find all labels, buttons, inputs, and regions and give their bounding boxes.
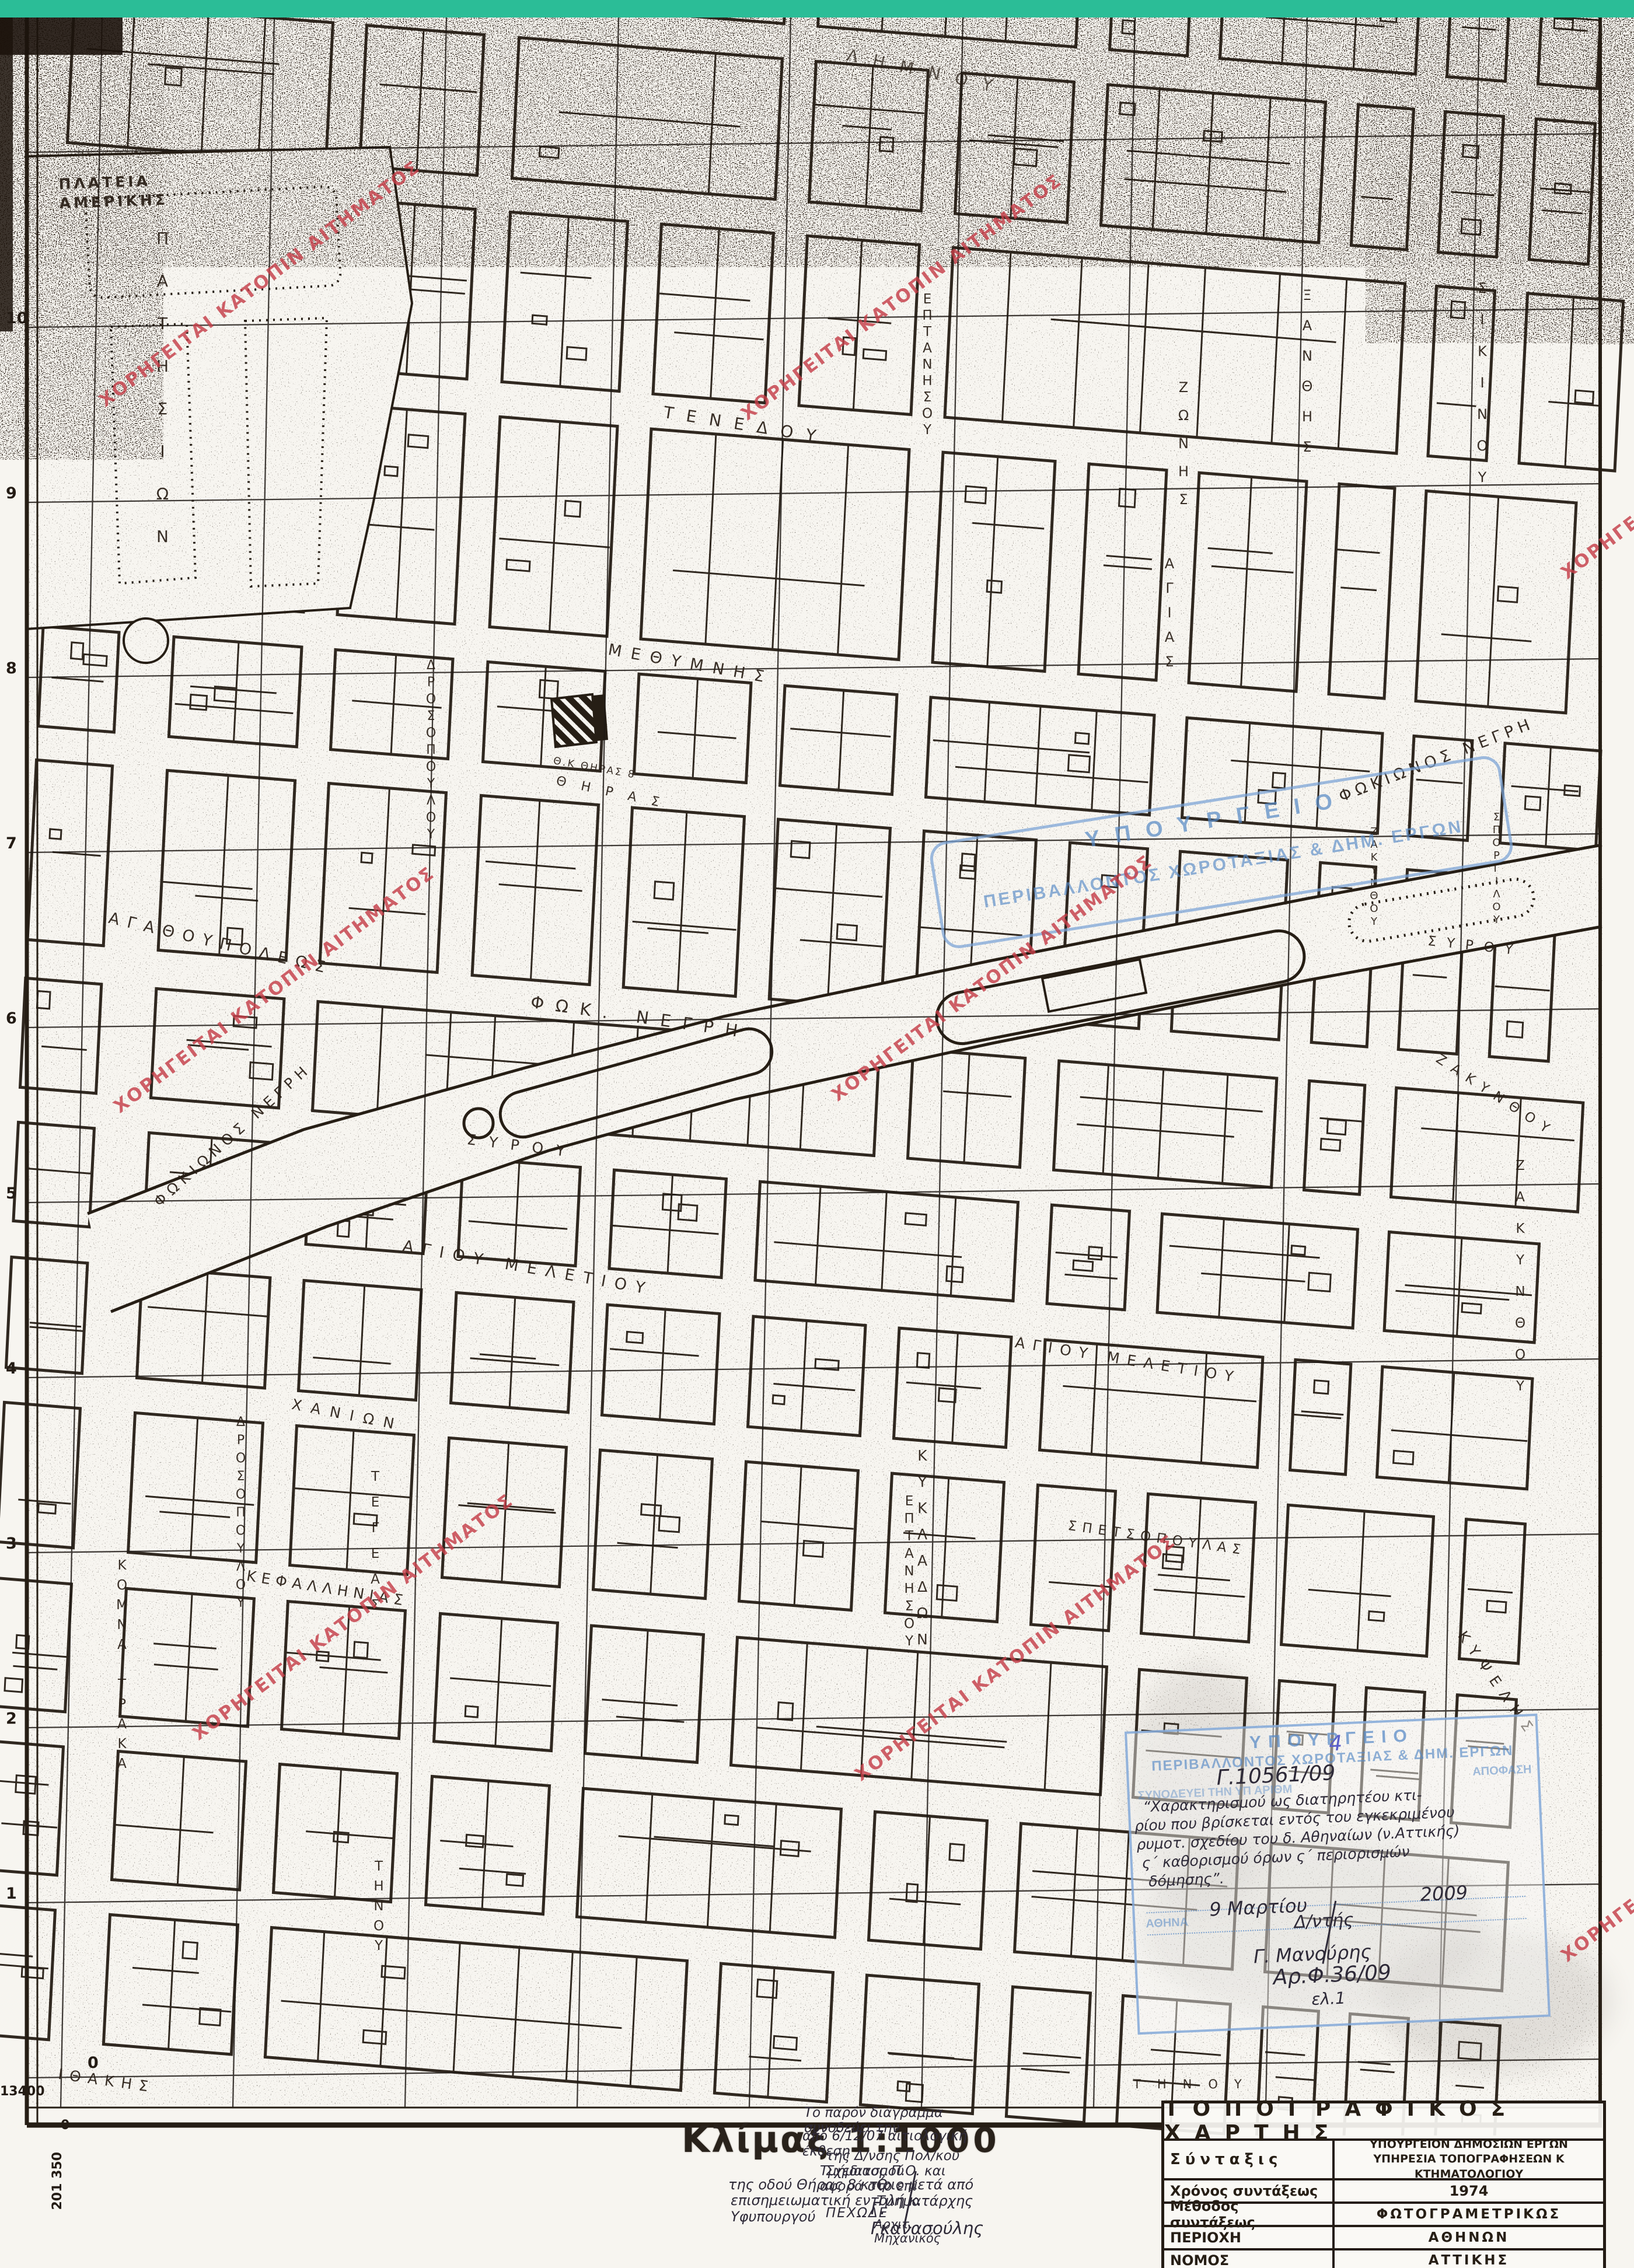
decision-body-5: δόμησης”. bbox=[1148, 1869, 1225, 1890]
tb-label-syntaxis: Σύνταξις bbox=[1164, 2141, 1335, 2178]
title-block: ΤΟΠΟΓΡΑΦΙΚΟΣ ΧΑΡΤΗΣ Σύνταξις ΥΠΟΥΡΓΕΙΟΝ … bbox=[1161, 2101, 1606, 2268]
label-zakynthou-east: ΖΑΚΥΝΘΟΥ bbox=[1513, 1158, 1528, 1410]
label-drosopoulou-north: ΔΡΟΣΟΠΟΥΛΟΥ bbox=[424, 658, 438, 844]
label-xanthis: ΞΑΝΘΗΣ bbox=[1299, 287, 1315, 469]
note-signature-role: Αρχιτ. Μηχανικός bbox=[874, 2217, 980, 2245]
label-eptanisou-north: ΕΠΤΑΝΗΣΟΥ bbox=[920, 292, 935, 439]
title-block-row-prefecture: ΝΟΜΟΣ ΑΤΤΙΚΗΣ bbox=[1164, 2248, 1603, 2268]
grid-number-7: 7 bbox=[6, 834, 17, 852]
label-plateia-amerikis: ΠΛΑΤΕΙΑ ΑΜΕΡΙΚΗΣ bbox=[58, 171, 168, 212]
tb-label-area: ΠΕΡΙΟΧΗ bbox=[1164, 2227, 1335, 2248]
tb-value-method: ΦΩΤΟΓΡΑΜΕΤΡΙΚΩΣ bbox=[1335, 2204, 1603, 2225]
decision-role: Δ/ντής bbox=[1294, 1910, 1354, 1932]
grid-number-1: 1 bbox=[6, 1885, 17, 1903]
decision-year: 2009 bbox=[1420, 1881, 1468, 1906]
label-patision: ΠΑΤΗΣΙΩΝ bbox=[153, 229, 172, 569]
decision-sheet: ελ.1 bbox=[1311, 1989, 1346, 2010]
decision-protocol-number: Γ.10561/09 bbox=[1216, 1761, 1336, 1790]
decision-corner-mark: 4 bbox=[1328, 1731, 1343, 1756]
scanned-topographic-map: ΠΛΑΤΕΙΑ ΑΜΕΡΙΚΗΣ ΠΑΤΗΣΙΩΝ ΛΗΜΝΟΥ ΤΕΝΕΔΟΥ… bbox=[0, 0, 1634, 2268]
decision-city: ΑΘΗΝΑ bbox=[1146, 1916, 1189, 1931]
handwritten-note: Το παρόν διάγραμμα συνοδεύει την από 6/1… bbox=[677, 2095, 980, 2268]
label-komna-traka: ΚΟΜΝΑ ΤΡΑΚΑ bbox=[114, 1558, 130, 1776]
title-block-row-method: Μέθοδος συντάξεως ΦΩΤΟΓΡΑΜΕΤΡΙΚΩΣ bbox=[1164, 2201, 1603, 2225]
title-block-row-area: ΠΕΡΙΟΧΗ ΑΘΗΝΩΝ bbox=[1164, 2225, 1603, 2248]
title-block-title: ΤΟΠΟΓΡΑΦΙΚΟΣ ΧΑΡΤΗΣ bbox=[1164, 2103, 1603, 2138]
grid-number-5: 5 bbox=[6, 1184, 17, 1203]
tb-value-syntaxis: ΥΠΟΥΡΓΕΙΟΝ ΔΗΜΟΣΙΩΝ ΕΡΓΩΝ ΥΠΗΡΕΣΙΑ ΤΟΠΟΓ… bbox=[1335, 2141, 1603, 2178]
decision-stamp: ΥΠΟΥΡΓΕΙΟ ΠΕΡΙΒΑΛΛΟΝΤΟΣ ΧΩΡΟΤΑΞΙΑΣ & ΔΗΜ… bbox=[1125, 1714, 1551, 2035]
grid-number-10: 10 bbox=[6, 309, 28, 327]
decision-file-number: Αρ.Φ.36/09 bbox=[1273, 1961, 1392, 1990]
label-kykladon: ΚΥΚΛΑΔΩΝ bbox=[914, 1447, 931, 1657]
label-tinou-south: ΤΗΝΟΥ bbox=[1133, 2077, 1258, 2091]
title-block-row-syntaxis: Σύνταξις ΥΠΟΥΡΓΕΙΟΝ ΔΗΜΟΣΙΩΝ ΕΡΓΩΝ ΥΠΗΡΕ… bbox=[1164, 2138, 1603, 2178]
grid-number-2: 2 bbox=[6, 1710, 17, 1728]
tb-label-prefecture: ΝΟΜΟΣ bbox=[1164, 2250, 1335, 2268]
tb-value-year: 1974 bbox=[1335, 2180, 1603, 2201]
tb-label-method: Μέθοδος συντάξεως bbox=[1164, 2204, 1335, 2225]
scanner-edge-band bbox=[0, 0, 1634, 18]
grid-number-8: 8 bbox=[6, 659, 17, 677]
label-agias: ΑΓΙΑΣ bbox=[1161, 555, 1178, 678]
label-sikinou: ΣΙΚΙΝΟΥ bbox=[1474, 280, 1490, 501]
decision-date: 9 Μαρτίου bbox=[1209, 1894, 1308, 1920]
grid-number-3: 3 bbox=[6, 1535, 17, 1553]
grid-number-9: 9 bbox=[6, 484, 17, 502]
tb-value-area: ΑΘΗΝΩΝ bbox=[1335, 2227, 1603, 2248]
label-zonis: ΖΩΝΗΣ bbox=[1175, 379, 1192, 519]
label-tinou-west: ΤΗΝΟΥ bbox=[371, 1859, 386, 1958]
grid-number-0: 0 bbox=[88, 2054, 99, 2072]
grid-number-4: 4 bbox=[6, 1360, 17, 1378]
tb-value-prefecture: ΑΤΤΙΚΗΣ bbox=[1335, 2250, 1603, 2268]
grid-number-6: 6 bbox=[6, 1009, 17, 1028]
decision-stamp-apofasi: ΑΠΟΦΑΣΗ bbox=[1472, 1763, 1532, 1778]
